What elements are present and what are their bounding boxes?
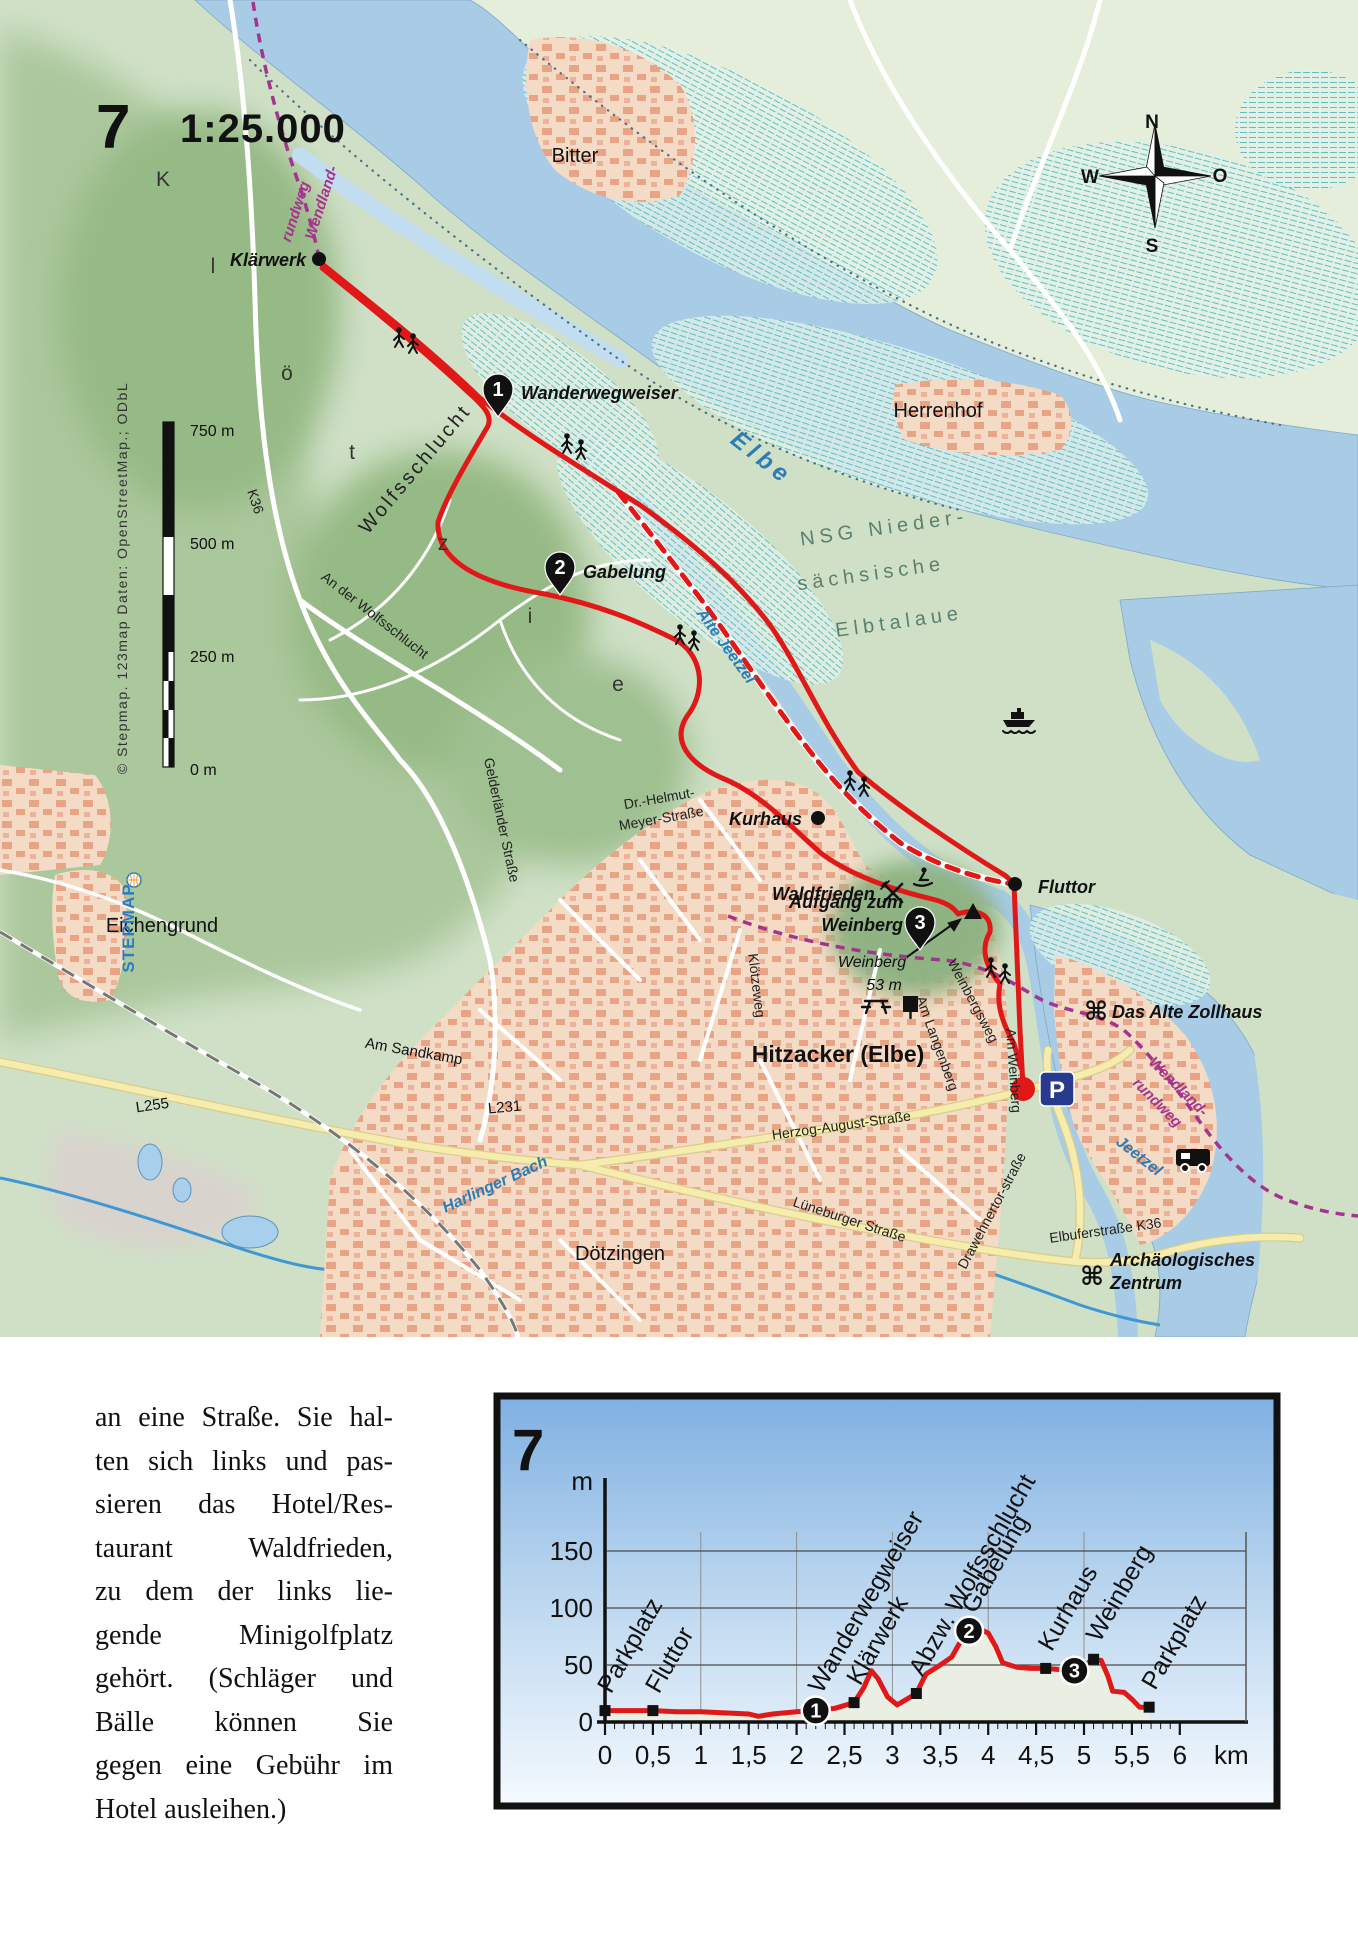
label-kurhaus: Kurhaus	[729, 809, 802, 829]
hamlet-west	[0, 765, 111, 875]
x-tick-label: 0,5	[635, 1740, 671, 1770]
svg-text:⌘: ⌘	[1084, 997, 1108, 1027]
x-tick-label: 3	[885, 1740, 899, 1770]
body-text-line: ten sich links und pas-	[95, 1440, 393, 1484]
label-kloetzie-oe: ö	[281, 362, 293, 385]
map-scale-ratio: 1:25.000	[180, 107, 346, 151]
waypoint-number: 3	[1069, 1661, 1080, 1683]
label-archaeologisches: Archäologisches	[1109, 1250, 1255, 1270]
topo-map[interactable]: i⌘⌘ P123 71:25.000KlärwerkBitterHerrenho…	[0, 0, 1358, 1337]
body-text-line: an eine Straße. Sie hal-	[95, 1396, 393, 1440]
dot-fluttor	[1008, 877, 1022, 891]
body-text-line: taurant Waldfrieden,	[95, 1527, 393, 1571]
poi-sign-icon: ⌘	[1080, 1262, 1104, 1292]
label-herrenhof: Herrenhof	[894, 400, 983, 422]
body-text-line: gegen eine Gebühr im	[95, 1744, 393, 1788]
scalebar-500: 500 m	[190, 536, 234, 553]
svg-text:3: 3	[914, 912, 925, 934]
label-aufgang-zum: Aufgang zum	[788, 892, 903, 912]
waypoint-number: 2	[963, 1621, 974, 1643]
svg-text:⌘: ⌘	[1080, 1262, 1104, 1292]
x-tick-label: 6	[1173, 1740, 1187, 1770]
label-hitzacker: Hitzacker (Elbe)	[752, 1041, 925, 1067]
label-wanderwegweiser: Wanderwegweiser	[521, 383, 679, 403]
forest-core-1	[60, 110, 340, 510]
label-zentrum: Zentrum	[1109, 1273, 1182, 1293]
body-text-line: sieren das Hotel/Res-	[95, 1483, 393, 1527]
label-aufgang-weinberg: Weinberg	[821, 915, 903, 935]
label-gabelung: Gabelung	[583, 562, 666, 582]
label-kloetzie-i: i	[528, 605, 533, 628]
map-number: 7	[96, 93, 130, 162]
waypoint-square	[1144, 1702, 1155, 1713]
svg-text:P: P	[1049, 1077, 1065, 1104]
y-tick-label: 150	[550, 1536, 593, 1566]
x-tick-label: 4	[981, 1740, 995, 1770]
parking-sign: P	[1040, 1072, 1074, 1106]
x-tick-label: 1,5	[731, 1740, 767, 1770]
label-fluttor: Fluttor	[1038, 877, 1096, 897]
x-tick-label: 2,5	[826, 1740, 862, 1770]
body-text-line: zu dem der links lie-	[95, 1570, 393, 1614]
label-bitter: Bitter	[552, 145, 599, 167]
x-axis-unit: km	[1214, 1740, 1249, 1770]
chart-number: 7	[512, 1418, 544, 1483]
compass-s: S	[1146, 236, 1159, 257]
waypoint-square	[849, 1697, 860, 1708]
label-weinberg-hoehe: 53 m	[866, 977, 902, 994]
label-kloetzie-e: e	[612, 673, 624, 696]
dot-klaerwerk	[312, 252, 326, 266]
scalebar-0: 0 m	[190, 762, 217, 779]
poi-sign-icon: ⌘	[1084, 997, 1108, 1027]
x-tick-label: 5,5	[1114, 1740, 1150, 1770]
compass-n: N	[1145, 112, 1159, 133]
x-tick-label: 3,5	[922, 1740, 958, 1770]
svg-text:2: 2	[554, 557, 565, 579]
label-zollhaus: Das Alte Zollhaus	[1112, 1002, 1262, 1022]
body-text-line: gehört. (Schläger und	[95, 1657, 393, 1701]
svg-text:i: i	[909, 998, 912, 1012]
scalebar-750: 750 m	[190, 423, 234, 440]
x-tick-label: 2	[789, 1740, 803, 1770]
label-kloetzie-k: K	[156, 168, 170, 191]
body-text-line: Bälle können Sie	[95, 1701, 393, 1745]
label-l231: L231	[487, 1098, 522, 1118]
svg-text:1: 1	[492, 379, 503, 401]
x-tick-label: 0	[598, 1740, 612, 1770]
y-tick-label: 50	[564, 1650, 593, 1680]
label-doetzingen: Dötzingen	[575, 1243, 665, 1265]
guidebook-page: i⌘⌘ P123 71:25.000KlärwerkBitterHerrenho…	[0, 0, 1358, 1948]
dot-kurhaus	[811, 811, 825, 825]
scale-bar	[163, 422, 174, 767]
attribution-brand: STEPMAP	[119, 883, 138, 972]
attribution-credit: © Stepmap. 123map Daten: OpenStreetMap.;…	[114, 382, 130, 774]
y-tick-label: 0	[579, 1707, 593, 1737]
compass-w: W	[1081, 167, 1099, 188]
elevation-chart[interactable]: 7 050100150m00,511,522,533,544,555,56kmP…	[490, 1390, 1285, 1810]
label-kloetzie-l: l	[211, 255, 216, 278]
x-tick-label: 4,5	[1018, 1740, 1054, 1770]
label-klaerwerk: Klärwerk	[230, 250, 307, 270]
waypoint-square	[600, 1705, 611, 1716]
waypoint-square	[1088, 1654, 1099, 1665]
label-weinberg: Weinberg	[838, 954, 906, 971]
y-axis-unit: m	[571, 1466, 593, 1496]
compass-o: O	[1213, 166, 1228, 187]
body-text-line: Hotel ausleihen.)	[95, 1788, 393, 1832]
body-text-line: gende Minigolfplatz	[95, 1614, 393, 1658]
body-text: an eine Straße. Sie hal-ten sich links u…	[95, 1396, 393, 1831]
waypoint-number: 1	[810, 1701, 821, 1723]
waypoint-square	[1040, 1663, 1051, 1674]
label-kloetzie-t: t	[349, 441, 355, 464]
label-kloetzie-z: z	[438, 532, 449, 555]
scalebar-250: 250 m	[190, 649, 234, 666]
x-tick-label: 1	[694, 1740, 708, 1770]
waypoint-square	[911, 1688, 922, 1699]
waypoint-square	[647, 1705, 658, 1716]
x-tick-label: 5	[1077, 1740, 1091, 1770]
y-tick-label: 100	[550, 1593, 593, 1623]
